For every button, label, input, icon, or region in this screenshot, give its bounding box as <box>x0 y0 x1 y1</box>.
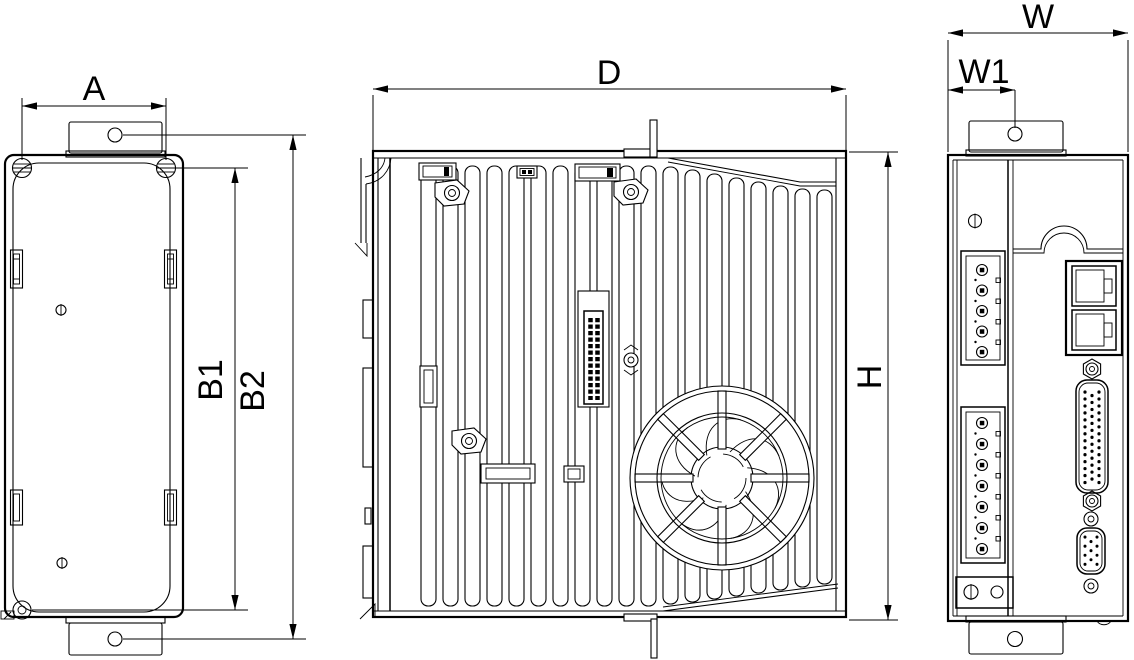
center-hole <box>57 557 67 569</box>
dim-label-a: A <box>83 70 106 108</box>
front-edge-connector-bumps <box>363 300 373 598</box>
dim-b1: B1 <box>32 168 248 610</box>
recessed-slot <box>564 466 584 482</box>
db44-connector <box>1076 359 1108 511</box>
rear-plate-outline <box>5 155 183 617</box>
mounting-tab-top <box>966 121 1066 156</box>
mounting-hole <box>1008 127 1022 141</box>
dim-label-b2: B2 <box>234 370 272 412</box>
dim-w1: W1 <box>948 53 1015 128</box>
rj45-jack <box>1072 266 1116 306</box>
recessed-slot <box>420 366 437 407</box>
usb-port-mark <box>517 166 537 178</box>
dim-label-w: W <box>1022 0 1054 36</box>
mounting-tab-pin-bottom <box>624 614 657 658</box>
rj45-ports <box>1066 261 1122 355</box>
screw-boss <box>614 179 648 205</box>
fin-screw <box>624 345 638 375</box>
vent-slot <box>575 164 620 181</box>
top-cover <box>1013 226 1123 253</box>
panel-screw <box>969 214 982 229</box>
pin-header <box>578 291 609 407</box>
jack-screw-post <box>1084 512 1098 526</box>
power-terminal-block <box>961 251 1005 365</box>
side-heatsink-view <box>355 120 846 658</box>
mounting-tab-bottom <box>66 617 165 655</box>
dim-label-d: D <box>597 54 622 92</box>
mounting-tab-top <box>66 122 165 157</box>
technical-drawing-page: A B1 B2 D H <box>0 0 1134 660</box>
mounting-tab-pin-top <box>624 120 657 157</box>
screw-boss <box>452 428 486 454</box>
dim-a: A <box>22 70 166 160</box>
front-panel-view <box>948 121 1128 654</box>
dim-label-w1: W1 <box>959 53 1010 91</box>
side-clip <box>11 250 23 288</box>
dim-h: H <box>849 152 898 620</box>
rj45-jack <box>1072 310 1116 350</box>
corner-screw-left <box>13 159 32 178</box>
dim-label-h: H <box>851 365 889 390</box>
db15-connector <box>1077 512 1105 593</box>
center-hole <box>56 304 66 316</box>
ground-terminal-block <box>956 577 1013 608</box>
screw-boss <box>435 180 469 206</box>
jack-screw-post <box>1084 579 1098 593</box>
rear-mounting-view <box>1 122 183 655</box>
dim-label-b1: B1 <box>192 359 230 401</box>
side-clip <box>11 490 23 525</box>
motor-terminal-block <box>961 407 1005 563</box>
mounting-hole <box>1008 632 1023 647</box>
vent-slot <box>419 163 456 180</box>
technical-drawing-canvas: A B1 B2 D H <box>0 0 1134 660</box>
dim-d: D <box>373 54 846 150</box>
cooling-fan <box>630 386 814 570</box>
mounting-hole <box>108 128 122 142</box>
recessed-slot <box>481 464 535 483</box>
mounting-hole <box>108 632 122 646</box>
